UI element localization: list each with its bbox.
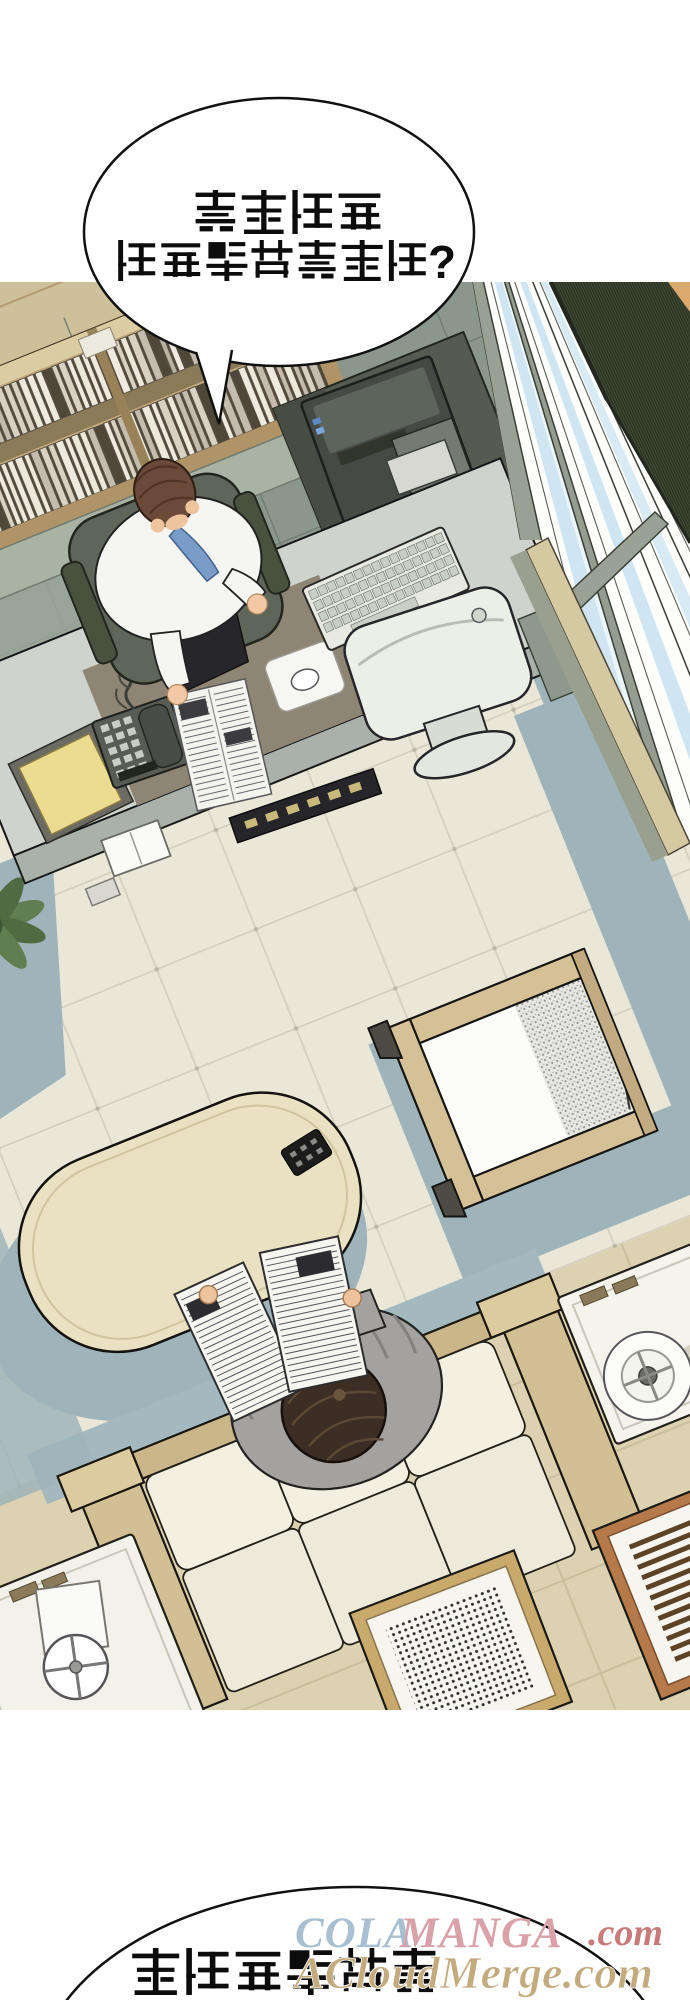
svg-text:?: ? [428, 236, 456, 288]
svg-text:ACloudMerge.com: ACloudMerge.com [291, 1947, 653, 1998]
